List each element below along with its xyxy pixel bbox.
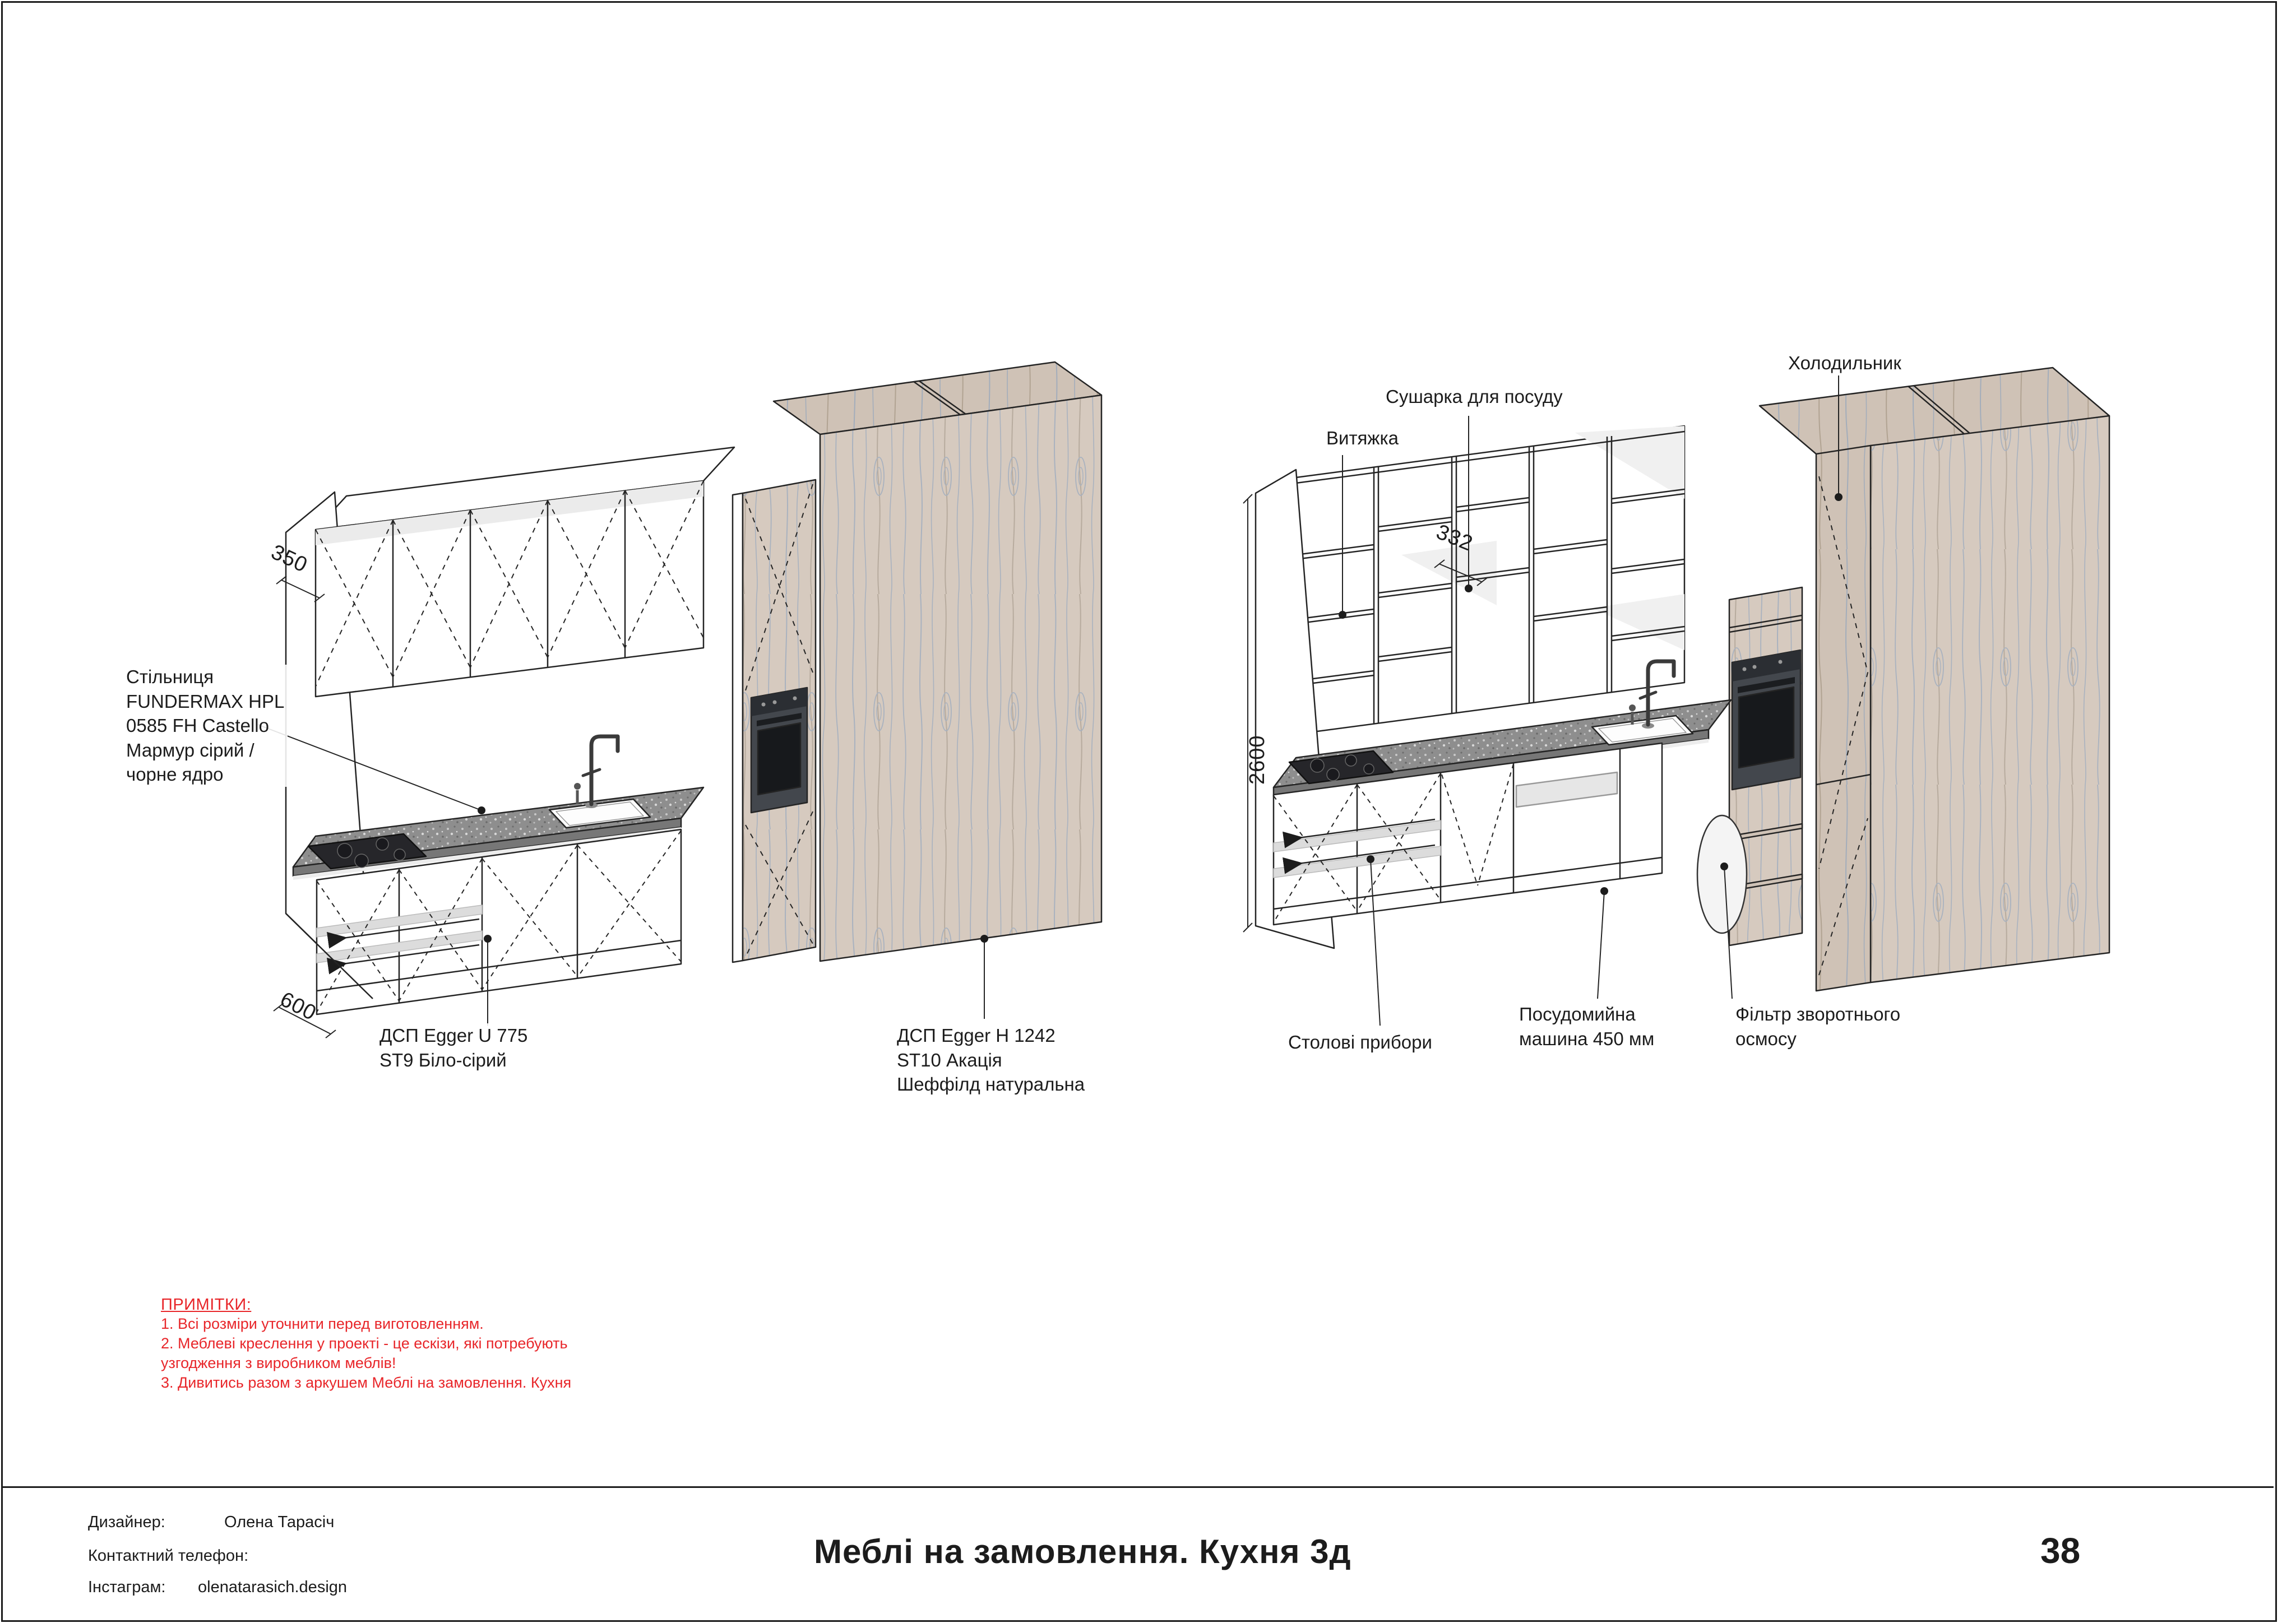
page-number: 38 <box>2040 1530 2080 1571</box>
note-item: 1. Всі розміри уточнити перед виготовлен… <box>161 1314 571 1334</box>
worktop-material-label: Стільниця FUNDERMAX HPL 0585 FH Castello… <box>126 665 288 787</box>
instagram-label: Інстаграм: <box>88 1578 166 1597</box>
left-oven-column <box>733 480 816 962</box>
hood-label: Витяжка <box>1326 426 1402 451</box>
oven-icon <box>1732 650 1800 790</box>
faucet-icon <box>574 736 618 808</box>
dish-dryer-label: Сушарка для посуду <box>1386 384 1566 409</box>
designer-value: Олена Тарасіч <box>224 1513 334 1532</box>
fridge-wood-block <box>1760 368 2109 991</box>
note-item: 2. Меблеві креслення у проекті - це ескі… <box>161 1334 571 1373</box>
left-kitchen-drawing <box>241 359 1194 1065</box>
instagram-value: olenatarasich.design <box>198 1578 347 1597</box>
phone-label: Контактний телефон: <box>88 1547 248 1565</box>
notes-block: ПРИМІТКИ: 1. Всі розміри уточнити перед … <box>161 1296 571 1393</box>
note-item: 3. Дивитись разом з аркушем Меблі на зам… <box>161 1373 571 1393</box>
fridge-label: Холодильник <box>1788 351 1905 375</box>
sheet-title: Меблі на замовлення. Кухня 3д <box>814 1532 1351 1571</box>
oven-icon <box>751 688 807 813</box>
footer-separator <box>3 1486 2274 1488</box>
cutlery-label: Столові прибори <box>1288 1030 1436 1055</box>
wood-board-material-label: ДСП Egger H 1242 ST10 Акація Шеффілд нат… <box>897 1023 1088 1097</box>
dimension-2600: 2600 <box>1246 735 1270 785</box>
white-board-material-label: ДСП Egger U 775 ST9 Біло-сірий <box>379 1023 531 1072</box>
dishwasher-label: Посудомийна машина 450 мм <box>1519 1002 1658 1051</box>
right-open-shelving <box>1296 426 1684 734</box>
osmosis-filter-label: Фільтр зворотнього осмосу <box>1735 1002 1904 1051</box>
osmosis-filter-icon <box>1697 815 1747 933</box>
left-wood-tall-box <box>774 362 1101 961</box>
designer-label: Дизайнер: <box>88 1513 165 1532</box>
notes-title: ПРИМІТКИ: <box>161 1296 571 1314</box>
